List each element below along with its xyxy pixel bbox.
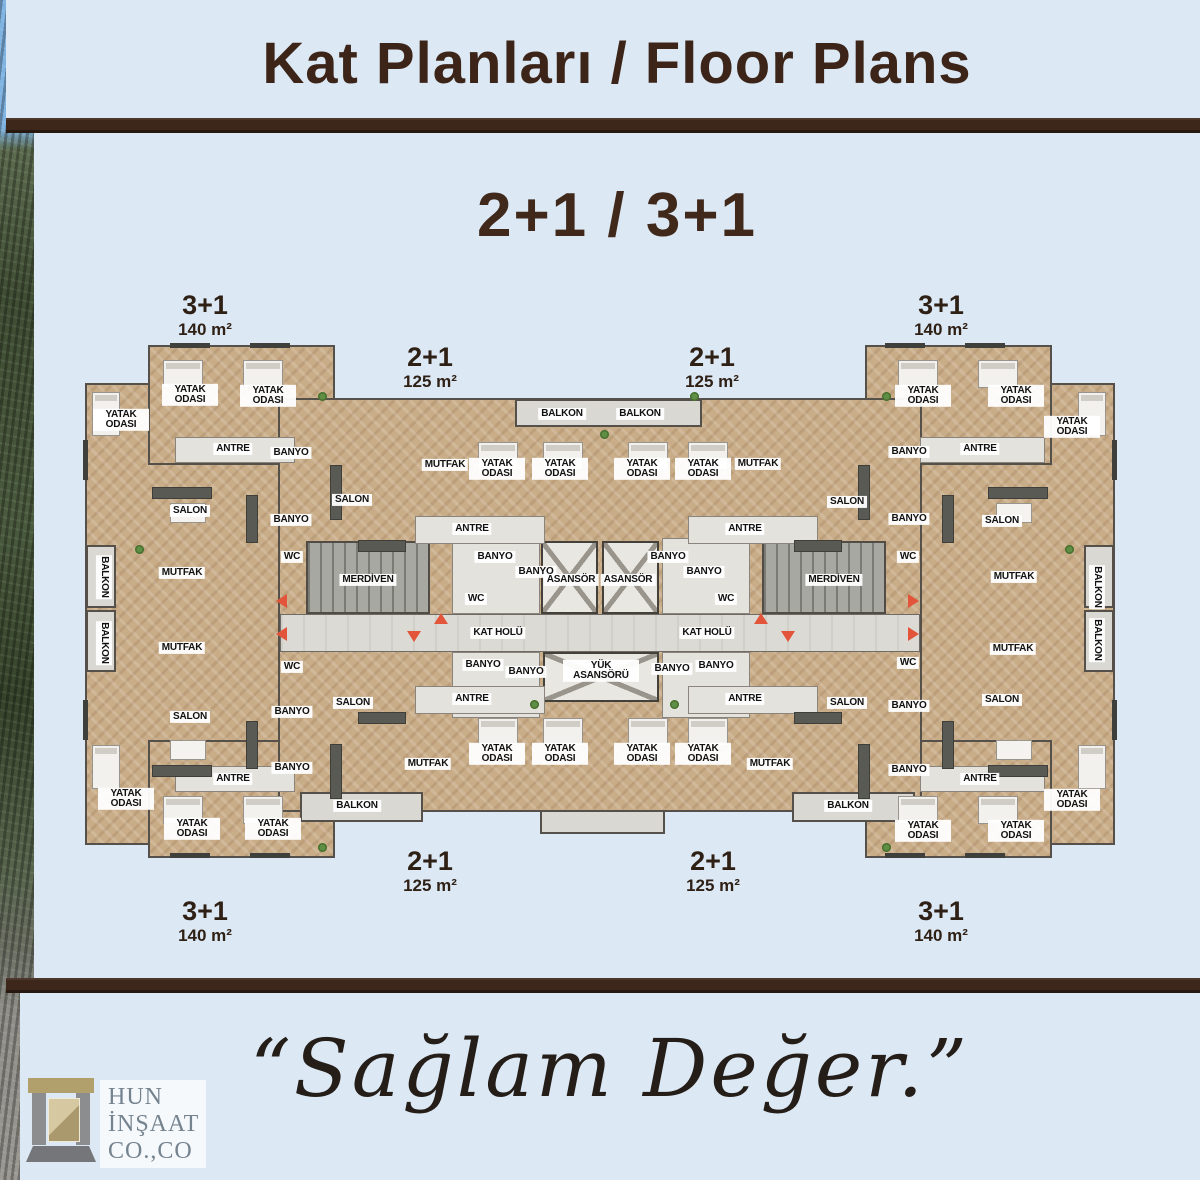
room-label-banyo: BANYO [647,551,688,563]
room-label-banyo: BANYO [888,700,929,712]
room-label-wc: WC [281,551,303,563]
unit-area: 125 m² [685,371,739,394]
room-label-balkon: BALKON [538,408,586,420]
room-label-yatak-odasi: YATAK ODASI [98,788,154,810]
bed [898,360,938,388]
unit-label-3plus1: 3+1140 m² [914,898,968,948]
unit-label-2plus1: 2+1125 m² [403,848,457,898]
unit-type: 2+1 [403,848,457,875]
entry-arrow-icon [781,631,795,642]
window-mark [1112,700,1117,740]
plant-icon [1065,545,1074,554]
room-label-asans-r: ASANSÖR [601,574,656,586]
entry-arrow-icon [434,613,448,624]
unit-label-3plus1: 3+1140 m² [178,898,232,948]
room-label-mutfak: MUTFAK [990,643,1036,655]
room-label-balkon: BALKON [1089,618,1105,662]
unit-area: 140 m² [914,319,968,342]
room-label-salon: SALON [827,697,867,709]
company-logo: HUN İNŞAAT CO.,CO [22,1076,282,1168]
entry-arrow-icon [754,613,768,624]
room-label-yatak-odasi: YATAK ODASI [614,458,670,480]
logo-mark-base [26,1146,96,1162]
plant-icon [882,843,891,852]
plant-icon [600,430,609,439]
unit-area: 140 m² [178,925,232,948]
room-label-yatak-odasi: YATAK ODASI [469,458,525,480]
sofa [988,487,1048,499]
divider-bar-bottom [6,978,1200,993]
window-mark [250,343,290,348]
sofa [858,465,870,520]
room-label-balkon: BALKON [616,408,664,420]
corridor-kat-holu [280,614,920,652]
room-label-mutfak: MUTFAK [159,642,205,654]
logo-line-3: CO.,CO [108,1138,199,1165]
room-label-antre: ANTRE [960,773,999,785]
bed [92,745,120,789]
room-label-banyo: BANYO [695,660,736,672]
room-label-banyo: BANYO [888,446,929,458]
brand-tagline: “Sağlam Değer.” [240,1022,980,1115]
room-label-wc: WC [897,657,919,669]
room-label-wc: WC [715,593,737,605]
sofa [330,744,342,799]
unit-type: 2+1 [686,848,740,875]
room-label-yatak-odasi: YATAK ODASI [988,820,1044,842]
room-label-salon: SALON [982,694,1022,706]
entry-arrow-icon [908,627,919,641]
window-mark [170,343,210,348]
room-label-yatak-odasi: YATAK ODASI [675,458,731,480]
logo-mark-core [48,1098,80,1142]
room-label-yatak-odasi: YATAK ODASI [245,818,301,840]
room-label-yatak-odasi: YATAK ODASI [675,743,731,765]
sofa [152,765,212,777]
sofa [358,540,406,552]
unit-area: 125 m² [403,371,457,394]
window-mark [83,440,88,480]
room-label-salon: SALON [982,515,1022,527]
sofa [942,495,954,543]
window-mark [965,853,1005,858]
room-label-salon: SALON [333,697,373,709]
unit-type: 3+1 [914,898,968,925]
window-mark [1112,440,1117,480]
logo-text: HUN İNŞAAT CO.,CO [108,1084,199,1165]
unit-type: 3+1 [178,898,232,925]
logo-line-2: İNŞAAT [108,1111,199,1138]
room-label-yatak-odasi: YATAK ODASI [240,385,296,407]
sofa [330,465,342,520]
entry-arrow-icon [276,627,287,641]
room-label-yatak-odasi: YATAK ODASI [1044,789,1100,811]
bed [243,360,283,388]
room-label-merdi-ven: MERDİVEN [339,574,396,586]
room-label-banyo: BANYO [271,762,312,774]
bed [1078,745,1106,789]
room-label-kat-hol-: KAT HOLÜ [679,627,734,639]
room-label-yatak-odasi: YATAK ODASI [164,818,220,840]
hun-insaat-logo-icon [22,1076,100,1164]
unit-label-3plus1: 3+1140 m² [914,292,968,342]
plant-icon [530,700,539,709]
room-label-yatak-odasi: YATAK ODASI [895,385,951,407]
room-label-banyo: BANYO [888,764,929,776]
room-label-yatak-odasi: YATAK ODASI [93,409,149,431]
coffee-table [996,740,1032,760]
window-mark [250,853,290,858]
room-label-salon: SALON [827,496,867,508]
room-label-balkon: BALKON [333,800,381,812]
logo-mark-topbar [28,1078,94,1093]
room-label-salon: SALON [170,711,210,723]
sofa [246,721,258,769]
room-label-antre: ANTRE [213,443,252,455]
entry-arrow-icon [908,594,919,608]
room-label-wc: WC [465,593,487,605]
sofa [858,744,870,799]
room-label-banyo: BANYO [474,551,515,563]
logo-line-1: HUN [108,1084,199,1111]
logo-mark-left [32,1093,46,1145]
room-label-asans-r: ASANSÖR [544,574,599,586]
room-label-antre: ANTRE [452,693,491,705]
room-label-mutfak: MUTFAK [159,567,205,579]
room-label-y-k-asans-r-: YÜK ASANSÖRÜ [563,660,639,682]
unit-area: 140 m² [178,319,232,342]
unit-label-2plus1: 2+1125 m² [686,848,740,898]
window-mark [170,853,210,858]
room-label-balkon: BALKON [1089,565,1105,609]
unit-type: 2+1 [403,344,457,371]
room-label-wc: WC [281,661,303,673]
sofa [794,540,842,552]
window-mark [965,343,1005,348]
room-label-mutfak: MUTFAK [747,758,793,770]
window-mark [885,343,925,348]
unit-label-3plus1: 3+1140 m² [178,292,232,342]
room-label-yatak-odasi: YATAK ODASI [614,743,670,765]
window-mark [885,853,925,858]
plant-icon [318,392,327,401]
unit-area: 125 m² [403,875,457,898]
room-label-kat-hol-: KAT HOLÜ [470,627,525,639]
plant-icon [318,843,327,852]
room-label-banyo: BANYO [505,666,546,678]
room-label-salon: SALON [170,505,210,517]
unit-type: 3+1 [914,292,968,319]
room-label-banyo: BANYO [651,663,692,675]
sofa [358,712,406,724]
balcony-bottom-center [540,810,665,834]
coffee-table [170,740,206,760]
entry-arrow-icon [276,594,287,608]
sofa [152,487,212,499]
room-label-yatak-odasi: YATAK ODASI [1044,416,1100,438]
bed [628,718,668,746]
unit-area: 140 m² [914,925,968,948]
bed [978,360,1018,388]
plant-icon [882,392,891,401]
unit-type: 2+1 [685,344,739,371]
plant-icon [670,700,679,709]
sofa [794,712,842,724]
bed [543,718,583,746]
unit-area: 125 m² [686,875,740,898]
room-label-antre: ANTRE [213,773,252,785]
room-label-balkon: BALKON [824,800,872,812]
room-label-antre: ANTRE [725,523,764,535]
room-label-yatak-odasi: YATAK ODASI [532,458,588,480]
room-label-mutfak: MUTFAK [422,459,468,471]
unit-type: 3+1 [178,292,232,319]
room-label-banyo: BANYO [270,514,311,526]
room-label-mutfak: MUTFAK [991,571,1037,583]
room-label-yatak-odasi: YATAK ODASI [532,743,588,765]
room-label-merdi-ven: MERDİVEN [805,574,862,586]
room-label-banyo: BANYO [270,447,311,459]
room-label-banyo: BANYO [888,513,929,525]
window-mark [83,700,88,740]
room-label-mutfak: MUTFAK [405,758,451,770]
room-label-antre: ANTRE [960,443,999,455]
unit-label-2plus1: 2+1125 m² [403,344,457,394]
unit-label-2plus1: 2+1125 m² [685,344,739,394]
floor-plans-poster: Kat Planları / Floor Plans 2+1 / 3+1 [0,0,1200,1180]
room-label-balkon: BALKON [96,621,112,665]
room-label-wc: WC [897,551,919,563]
room-label-banyo: BANYO [683,566,724,578]
entry-arrow-icon [407,631,421,642]
room-label-yatak-odasi: YATAK ODASI [895,820,951,842]
bed [688,718,728,746]
room-label-banyo: BANYO [462,659,503,671]
room-label-yatak-odasi: YATAK ODASI [469,743,525,765]
room-label-yatak-odasi: YATAK ODASI [162,384,218,406]
sofa [942,721,954,769]
floor-plan: YATAK ODASIYATAK ODASIYATAK ODASIANTREBA… [0,0,1200,1180]
room-label-salon: SALON [332,494,372,506]
room-label-banyo: BANYO [271,706,312,718]
bed [478,718,518,746]
sofa [246,495,258,543]
room-label-mutfak: MUTFAK [735,458,781,470]
room-label-antre: ANTRE [725,693,764,705]
room-label-antre: ANTRE [452,523,491,535]
room-label-balkon: BALKON [96,555,112,599]
room-label-yatak-odasi: YATAK ODASI [988,385,1044,407]
plant-icon [135,545,144,554]
